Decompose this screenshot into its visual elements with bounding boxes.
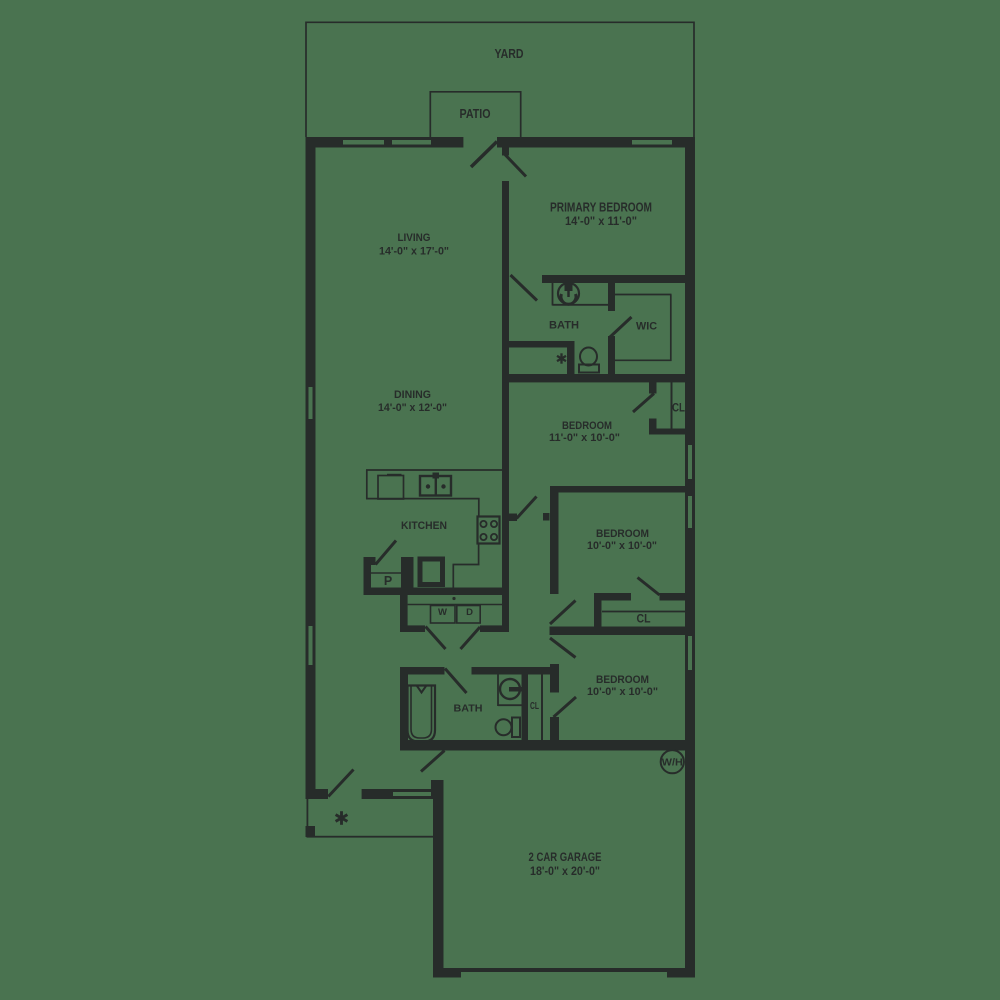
svg-text:BATH: BATH — [454, 703, 483, 715]
svg-text:10'-0" x 10'-0": 10'-0" x 10'-0" — [587, 686, 658, 698]
svg-text:14'-0" x 12'-0": 14'-0" x 12'-0" — [378, 402, 447, 414]
svg-text:W/H: W/H — [662, 758, 683, 769]
svg-text:KITCHEN: KITCHEN — [401, 520, 447, 532]
svg-text:BEDROOM: BEDROOM — [562, 420, 612, 432]
svg-text:2 CAR GARAGE: 2 CAR GARAGE — [529, 852, 602, 864]
svg-text:DINING: DINING — [394, 389, 431, 401]
svg-text:PATIO: PATIO — [460, 106, 491, 121]
svg-text:PRIMARY BEDROOM: PRIMARY BEDROOM — [550, 201, 652, 215]
svg-text:CL: CL — [672, 403, 685, 415]
svg-text:CL: CL — [637, 612, 651, 626]
svg-text:W: W — [438, 607, 447, 618]
svg-text:P: P — [384, 574, 392, 588]
svg-text:18'-0" x 20'-0": 18'-0" x 20'-0" — [530, 866, 600, 878]
svg-text:10'-0" x 10'-0": 10'-0" x 10'-0" — [587, 540, 657, 552]
svg-text:WIC: WIC — [636, 321, 657, 333]
svg-text:BATH: BATH — [549, 320, 579, 332]
svg-text:LIVING: LIVING — [398, 232, 431, 244]
svg-text:CL: CL — [530, 701, 539, 712]
svg-text:14'-0" x 11'-0": 14'-0" x 11'-0" — [565, 216, 637, 228]
svg-text:11'-0" x 10'-0": 11'-0" x 10'-0" — [549, 432, 620, 444]
svg-text:YARD: YARD — [495, 46, 524, 61]
svg-text:BEDROOM: BEDROOM — [596, 528, 649, 540]
svg-text:D: D — [466, 607, 473, 618]
svg-text:BEDROOM: BEDROOM — [596, 674, 649, 686]
svg-text:14'-0" x 17'-0": 14'-0" x 17'-0" — [379, 246, 449, 258]
